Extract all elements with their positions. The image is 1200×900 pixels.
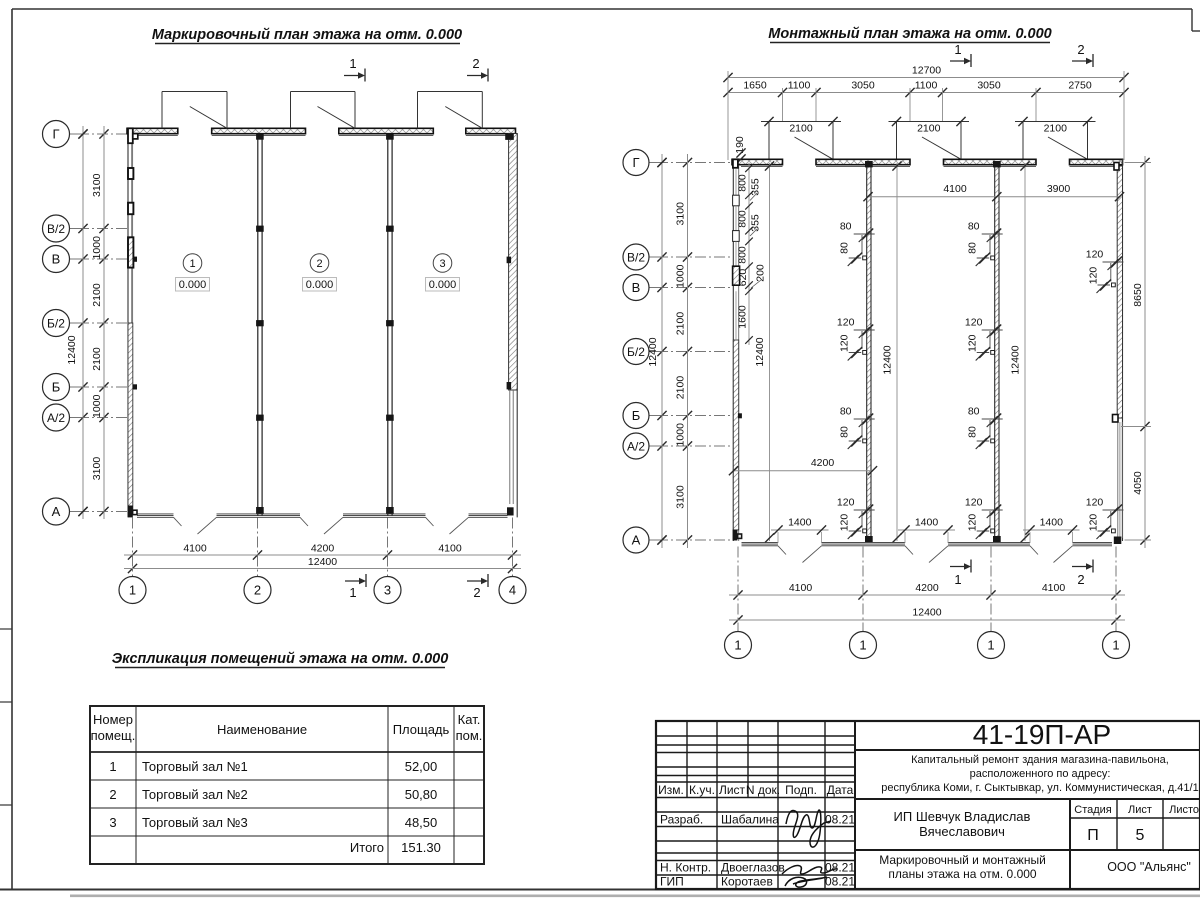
svg-text:Двоеглазов: Двоеглазов xyxy=(721,861,785,875)
svg-text:Г: Г xyxy=(52,127,59,142)
svg-text:800: 800 xyxy=(737,210,749,228)
svg-text:2: 2 xyxy=(109,787,116,802)
svg-text:12400: 12400 xyxy=(308,556,337,568)
svg-text:помещ.: помещ. xyxy=(91,728,136,743)
svg-text:2100: 2100 xyxy=(675,312,687,336)
svg-text:3: 3 xyxy=(439,258,445,270)
svg-text:В/2: В/2 xyxy=(627,250,645,264)
svg-text:3100: 3100 xyxy=(675,202,687,226)
svg-text:3: 3 xyxy=(384,583,391,598)
svg-text:12400: 12400 xyxy=(912,607,941,619)
svg-text:120: 120 xyxy=(967,514,979,532)
svg-text:2: 2 xyxy=(1077,42,1084,57)
svg-text:Маркировочный и монтажный: Маркировочный и монтажный xyxy=(879,853,1046,867)
svg-text:80: 80 xyxy=(840,221,852,233)
svg-text:Подп.: Подп. xyxy=(785,783,817,797)
svg-text:0.000: 0.000 xyxy=(306,279,334,291)
svg-text:Экспликация помещений этажа на: Экспликация помещений этажа на отм. 0.00… xyxy=(112,651,449,667)
svg-text:4: 4 xyxy=(509,583,516,598)
svg-text:В/2: В/2 xyxy=(47,222,65,236)
svg-text:А/2: А/2 xyxy=(47,411,65,425)
svg-text:1400: 1400 xyxy=(788,517,812,529)
svg-text:ИП Шевчук Владислав: ИП Шевчук Владислав xyxy=(894,809,1031,824)
svg-text:2100: 2100 xyxy=(1044,123,1068,135)
svg-text:3050: 3050 xyxy=(851,80,875,92)
svg-text:4200: 4200 xyxy=(915,582,939,594)
svg-text:П: П xyxy=(1087,827,1099,844)
svg-text:120: 120 xyxy=(1086,249,1104,261)
svg-text:800: 800 xyxy=(737,174,749,192)
svg-text:1: 1 xyxy=(129,583,136,598)
svg-text:Торговый зал №2: Торговый зал №2 xyxy=(142,787,248,802)
svg-text:1100: 1100 xyxy=(788,80,811,92)
svg-text:120: 120 xyxy=(965,497,983,509)
svg-text:12400: 12400 xyxy=(1010,345,1022,374)
svg-text:2100: 2100 xyxy=(789,123,813,135)
svg-text:А/2: А/2 xyxy=(627,439,645,453)
svg-text:ООО "Альянс": ООО "Альянс" xyxy=(1107,860,1191,874)
svg-text:190: 190 xyxy=(734,136,746,154)
svg-text:52,00: 52,00 xyxy=(405,759,438,774)
svg-text:2: 2 xyxy=(473,585,480,600)
svg-text:50,80: 50,80 xyxy=(405,787,438,802)
svg-text:Дата: Дата xyxy=(827,783,854,797)
svg-text:Б: Б xyxy=(632,408,641,423)
svg-text:Разраб.: Разраб. xyxy=(660,813,703,827)
svg-text:41-19П-АР: 41-19П-АР xyxy=(973,719,1111,750)
svg-text:Итого: Итого xyxy=(350,840,384,855)
svg-text:120: 120 xyxy=(1088,267,1100,285)
svg-text:4200: 4200 xyxy=(811,457,835,469)
svg-text:1000: 1000 xyxy=(91,236,103,260)
svg-text:4100: 4100 xyxy=(943,183,967,195)
svg-text:А: А xyxy=(52,504,61,519)
svg-text:2100: 2100 xyxy=(917,123,941,135)
svg-text:8650: 8650 xyxy=(1132,283,1144,307)
svg-text:12400: 12400 xyxy=(66,335,78,364)
svg-text:Монтажный план этажа на отм. 0: Монтажный план этажа на отм. 0.000 xyxy=(768,26,1051,42)
svg-text:В: В xyxy=(632,280,641,295)
svg-text:80: 80 xyxy=(967,426,979,438)
svg-text:Капитальный ремонт здания мага: Капитальный ремонт здания магазина-павил… xyxy=(911,754,1169,766)
svg-text:1000: 1000 xyxy=(675,423,687,447)
svg-text:1000: 1000 xyxy=(91,394,103,418)
svg-text:2750: 2750 xyxy=(1068,80,1092,92)
svg-text:2: 2 xyxy=(472,56,479,71)
svg-text:120: 120 xyxy=(1086,497,1104,509)
svg-text:Торговый зал №3: Торговый зал №3 xyxy=(142,815,248,830)
svg-text:48,50: 48,50 xyxy=(405,815,438,830)
svg-text:Листов: Листов xyxy=(1169,804,1200,816)
svg-text:80: 80 xyxy=(840,406,852,418)
svg-text:Лист: Лист xyxy=(1128,804,1152,816)
svg-text:12400: 12400 xyxy=(754,337,766,366)
svg-text:4200: 4200 xyxy=(311,543,335,555)
svg-text:5: 5 xyxy=(1136,827,1145,844)
svg-text:пом.: пом. xyxy=(456,728,483,743)
svg-text:1: 1 xyxy=(954,42,961,57)
svg-text:120: 120 xyxy=(1088,514,1100,532)
svg-text:Наименование: Наименование xyxy=(217,722,307,737)
svg-text:Коротаев: Коротаев xyxy=(721,875,773,889)
svg-text:120: 120 xyxy=(837,317,855,329)
svg-text:3100: 3100 xyxy=(675,485,687,509)
svg-text:2100: 2100 xyxy=(91,283,103,307)
svg-text:80: 80 xyxy=(839,242,851,254)
svg-text:08.21: 08.21 xyxy=(825,861,855,875)
svg-text:1: 1 xyxy=(189,258,195,270)
svg-text:Вячеславович: Вячеславович xyxy=(919,824,1005,839)
svg-text:Лист: Лист xyxy=(719,783,746,797)
svg-text:3900: 3900 xyxy=(1047,183,1071,195)
svg-text:12400: 12400 xyxy=(647,337,659,366)
svg-text:4100: 4100 xyxy=(183,543,207,555)
svg-text:N док.: N док. xyxy=(746,783,780,797)
svg-text:2: 2 xyxy=(1077,572,1084,587)
svg-text:120: 120 xyxy=(837,497,855,509)
svg-text:80: 80 xyxy=(967,242,979,254)
svg-text:80: 80 xyxy=(968,406,980,418)
svg-text:0.000: 0.000 xyxy=(429,279,457,291)
svg-text:4100: 4100 xyxy=(1042,582,1066,594)
svg-text:08.21: 08.21 xyxy=(825,875,855,889)
svg-text:80: 80 xyxy=(839,426,851,438)
svg-text:2100: 2100 xyxy=(91,347,103,371)
svg-text:12400: 12400 xyxy=(882,345,894,374)
svg-text:Площадь: Площадь xyxy=(393,722,450,737)
svg-text:республика Коми, г. Сыктывкар,: республика Коми, г. Сыктывкар, ул. Комму… xyxy=(881,782,1198,794)
svg-text:Б/2: Б/2 xyxy=(47,316,65,330)
svg-text:К.уч.: К.уч. xyxy=(689,783,715,797)
svg-text:355: 355 xyxy=(750,214,762,232)
svg-text:Н. Контр.: Н. Контр. xyxy=(660,861,711,875)
svg-text:Маркировочный план этажа на от: Маркировочный план этажа на отм. 0.000 xyxy=(152,27,462,43)
svg-text:151.30: 151.30 xyxy=(401,840,441,855)
svg-text:1: 1 xyxy=(349,585,356,600)
svg-text:620: 620 xyxy=(737,269,749,287)
svg-text:Изм.: Изм. xyxy=(658,783,684,797)
svg-text:1: 1 xyxy=(954,572,961,587)
svg-text:2: 2 xyxy=(316,258,322,270)
svg-text:1: 1 xyxy=(109,759,116,774)
svg-text:80: 80 xyxy=(968,221,980,233)
svg-text:Стадия: Стадия xyxy=(1074,804,1112,816)
svg-text:12700: 12700 xyxy=(912,65,941,77)
svg-text:1100: 1100 xyxy=(915,80,938,92)
svg-text:1: 1 xyxy=(349,56,356,71)
svg-text:Г: Г xyxy=(632,155,639,170)
svg-text:1: 1 xyxy=(734,638,741,653)
svg-text:1400: 1400 xyxy=(915,517,939,529)
svg-text:120: 120 xyxy=(839,334,851,352)
svg-text:Торговый зал №1: Торговый зал №1 xyxy=(142,759,248,774)
svg-text:Б: Б xyxy=(52,380,61,395)
svg-text:200: 200 xyxy=(755,264,767,282)
svg-text:1000: 1000 xyxy=(675,264,687,288)
svg-text:1400: 1400 xyxy=(1040,517,1064,529)
svg-text:1: 1 xyxy=(859,638,866,653)
svg-text:расположенного по адресу:: расположенного по адресу: xyxy=(970,768,1111,780)
svg-text:планы этажа на отм. 0.000: планы этажа на отм. 0.000 xyxy=(888,867,1037,881)
svg-text:4050: 4050 xyxy=(1132,471,1144,495)
svg-text:Б/2: Б/2 xyxy=(627,345,645,359)
svg-text:ГИП: ГИП xyxy=(660,875,684,889)
svg-text:1: 1 xyxy=(1112,638,1119,653)
svg-text:А: А xyxy=(632,533,641,548)
svg-text:120: 120 xyxy=(839,514,851,532)
svg-text:3050: 3050 xyxy=(977,80,1001,92)
svg-text:120: 120 xyxy=(965,317,983,329)
svg-text:355: 355 xyxy=(750,178,762,196)
svg-text:3100: 3100 xyxy=(91,457,103,481)
svg-text:В: В xyxy=(52,252,61,267)
svg-text:800: 800 xyxy=(737,246,749,264)
svg-text:1650: 1650 xyxy=(743,80,767,92)
svg-text:2100: 2100 xyxy=(675,376,687,400)
svg-text:1: 1 xyxy=(987,638,994,653)
svg-text:0.000: 0.000 xyxy=(179,279,207,291)
svg-text:08.21: 08.21 xyxy=(825,813,855,827)
svg-text:2: 2 xyxy=(254,583,261,598)
svg-text:4100: 4100 xyxy=(438,543,462,555)
svg-text:4100: 4100 xyxy=(789,582,813,594)
svg-text:Шабалина: Шабалина xyxy=(721,813,779,827)
svg-text:3100: 3100 xyxy=(91,173,103,197)
svg-text:Кат.: Кат. xyxy=(458,712,481,727)
svg-text:1600: 1600 xyxy=(737,305,749,329)
svg-text:Номер: Номер xyxy=(93,712,133,727)
svg-text:3: 3 xyxy=(109,815,116,830)
svg-text:120: 120 xyxy=(967,334,979,352)
